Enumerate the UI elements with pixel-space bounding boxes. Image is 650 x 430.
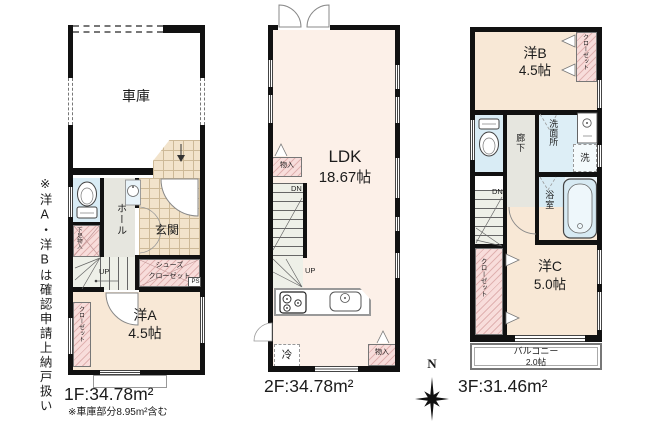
f2-up-label: UP	[305, 266, 315, 275]
f3-wall	[539, 172, 597, 177]
f3-window	[515, 335, 585, 342]
f2-window	[268, 60, 273, 87]
f2-wall	[268, 366, 315, 372]
f2-window	[395, 253, 400, 278]
f3-wall	[535, 112, 539, 242]
f1-room-a-size: 4.5帖	[100, 325, 190, 343]
f3-window	[597, 250, 602, 284]
f3-bath-label: 浴室	[543, 190, 554, 210]
f3-wall	[535, 240, 597, 245]
f3-toilet-floor	[475, 115, 503, 172]
side-note: ※洋A・洋Bは確認申請上納戸扱い	[36, 176, 52, 414]
f3-window	[597, 292, 602, 330]
f3-stairs	[475, 190, 503, 244]
f1-window	[68, 318, 73, 354]
f3-wall	[470, 172, 503, 176]
f2-stairs	[272, 183, 303, 258]
compass-north-label: N	[424, 356, 440, 372]
f3-wall	[470, 244, 503, 248]
f2-wall	[268, 25, 278, 30]
f1-shoes-closet-label: シューズ クローゼット	[139, 261, 200, 282]
f3-balcony-name: バルコニー	[514, 346, 559, 357]
f2-area-label: 2F:34.78m²	[264, 376, 353, 398]
f3-closet-bottom-label: クローゼット	[478, 258, 486, 297]
f1-wall	[68, 168, 153, 175]
f2-window	[315, 366, 358, 372]
f1-shoes-closet-line2: クローゼット	[139, 272, 200, 283]
f1-wall	[73, 222, 100, 225]
f1-wall	[135, 255, 200, 259]
f1-area-note: ※車庫部分8.95m²含む	[68, 407, 168, 420]
f2-fridge-label: 冷	[274, 349, 300, 362]
f2-wall	[358, 366, 400, 372]
f3-room-c-name: 洋C	[505, 258, 595, 276]
f3-wall	[470, 27, 475, 342]
f1-garage-vent	[200, 78, 205, 125]
f3-wall	[470, 27, 602, 32]
f3-dn-label: DN	[492, 187, 503, 196]
f3-wall	[470, 335, 515, 342]
f1-garage-label: 車庫	[106, 88, 166, 106]
f2-wall	[330, 25, 400, 30]
f1-shoes-closet-line1: シューズ	[139, 261, 200, 272]
f2-entry-door-arcs	[279, 5, 329, 27]
f2-dn-label: DN	[291, 184, 302, 193]
f2-wall	[303, 183, 307, 258]
f2-window	[395, 97, 400, 123]
f1-entrance-floor	[139, 178, 200, 255]
f3-window	[470, 120, 475, 160]
f1-hall-label: ホール	[113, 203, 126, 236]
f2-window	[268, 95, 273, 123]
f1-room-a-name: 洋A	[100, 307, 190, 325]
f2-storage-left-label: 物入	[272, 162, 302, 171]
f3-balcony: バルコニー 2.0帖	[470, 343, 602, 370]
f1-window	[100, 370, 140, 375]
f1-garage-vent	[68, 78, 73, 125]
f1-area-label: 1F:34.78m²	[64, 384, 153, 406]
f3-room-b-name: 洋B	[495, 45, 575, 63]
f1-wall	[163, 25, 205, 33]
f3-wall	[585, 335, 602, 342]
f1-wall	[100, 178, 104, 257]
f1-closet-a-label: クローゼット	[76, 306, 84, 342]
f1-window	[68, 187, 73, 217]
f3-balcony-inner: バルコニー 2.0帖	[474, 347, 598, 366]
f3-room-c-size: 5.0帖	[505, 277, 595, 294]
f3-area-label: 3F:31.46m²	[458, 376, 547, 398]
f1-garage-shutter	[73, 25, 163, 33]
f3-hallway-floor	[507, 115, 535, 207]
f1-stairs-winder	[73, 257, 100, 290]
f2-stairs-winder	[272, 258, 303, 288]
f1-up-label: UP	[99, 267, 109, 276]
f2-kitchen-counter	[274, 288, 371, 316]
f3-balcony-size: 2.0帖	[526, 357, 546, 367]
compass-star-icon	[415, 377, 449, 421]
f1-wall	[139, 287, 205, 292]
f2-storage-right-label: 物入	[368, 349, 396, 358]
f1-approach-floor	[153, 140, 200, 178]
f2-window	[395, 65, 400, 89]
f2-ldk-name: LDK	[300, 146, 390, 167]
f2-window	[395, 158, 400, 198]
f3-hallway-label: 廊下	[514, 133, 525, 153]
f3-washer-label: 洗	[573, 153, 597, 165]
f2-window	[395, 217, 400, 231]
f1-wall	[68, 287, 104, 292]
f3-closet-top-label: クローゼット	[580, 34, 588, 70]
f1-wall	[135, 178, 139, 208]
f3-washroom-label: 洗面所	[547, 119, 558, 146]
f1-window	[200, 297, 205, 343]
f3-window	[597, 145, 602, 167]
f1-toilet-floor	[73, 178, 100, 222]
f2-ldk-size: 18.67帖	[295, 169, 395, 188]
f3-room-b-size: 4.5帖	[495, 63, 575, 80]
f3-wall	[503, 110, 507, 335]
floorplan-image: ※洋A・洋Bは確認申請上納戸扱い	[0, 0, 650, 430]
f1-under-stairs-label: 下足物入	[75, 227, 82, 249]
f3-window	[597, 80, 602, 108]
f1-entrance-label: 玄関	[147, 223, 187, 238]
